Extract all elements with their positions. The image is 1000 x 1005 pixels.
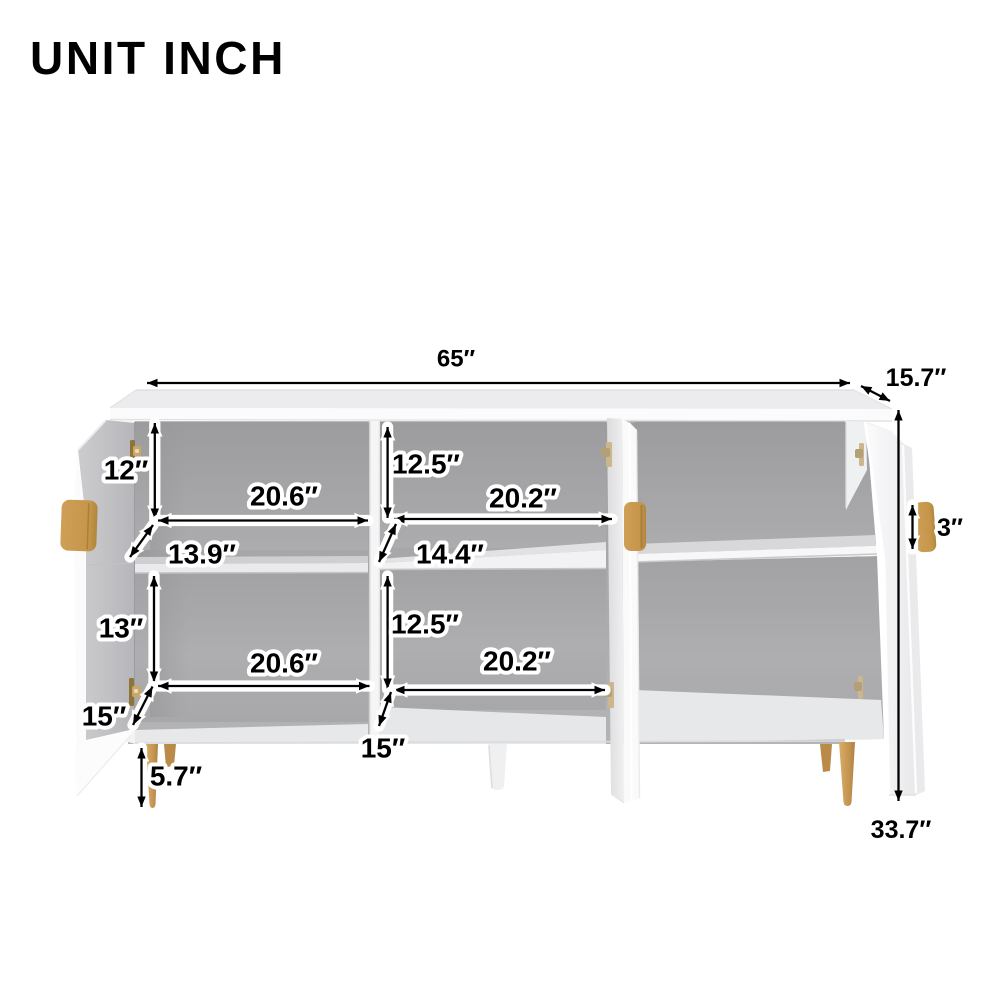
svg-text:13″: 13″	[99, 613, 144, 644]
svg-text:UNIT INCH: UNIT INCH	[30, 32, 286, 84]
svg-text:20.2″: 20.2″	[483, 646, 551, 677]
svg-text:15.7″: 15.7″	[886, 364, 947, 392]
svg-text:20.6″: 20.6″	[250, 648, 318, 679]
svg-text:15″: 15″	[361, 733, 406, 764]
svg-text:3″: 3″	[937, 514, 963, 542]
svg-text:20.6″: 20.6″	[250, 481, 318, 512]
svg-text:33.7″: 33.7″	[871, 816, 932, 844]
svg-text:13.9″: 13.9″	[168, 539, 236, 570]
svg-text:5.7″: 5.7″	[150, 761, 202, 792]
svg-text:12.5″: 12.5″	[392, 449, 460, 480]
svg-text:65″: 65″	[437, 346, 476, 373]
svg-text:14.4″: 14.4″	[416, 539, 484, 570]
svg-text:12″: 12″	[104, 455, 149, 486]
svg-text:20.2″: 20.2″	[489, 483, 557, 514]
svg-text:12.5″: 12.5″	[391, 609, 459, 640]
svg-text:15″: 15″	[82, 701, 127, 732]
